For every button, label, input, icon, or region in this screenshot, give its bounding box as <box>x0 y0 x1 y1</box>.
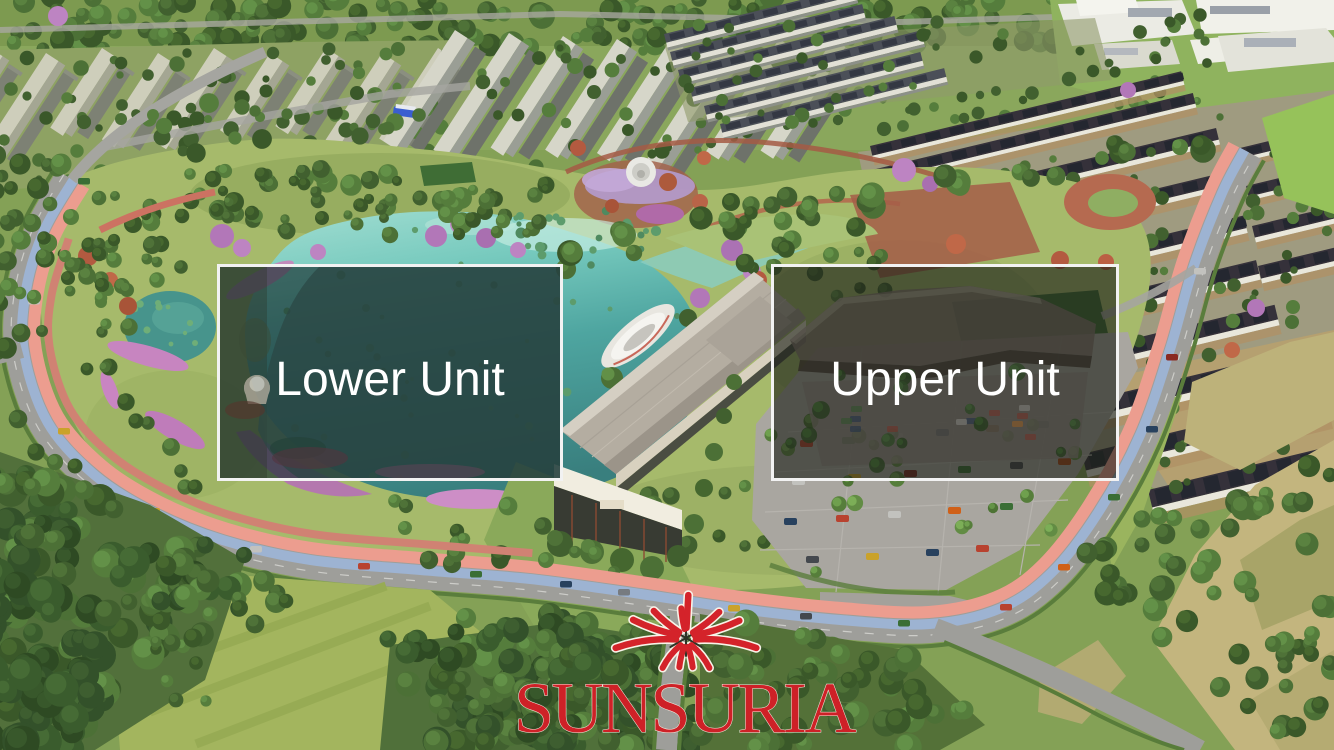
svg-text:Upper Unit: Upper Unit <box>830 353 1059 406</box>
svg-text:Lower Unit: Lower Unit <box>275 353 504 406</box>
svg-text:SUNSURIA: SUNSURIA <box>514 668 857 748</box>
